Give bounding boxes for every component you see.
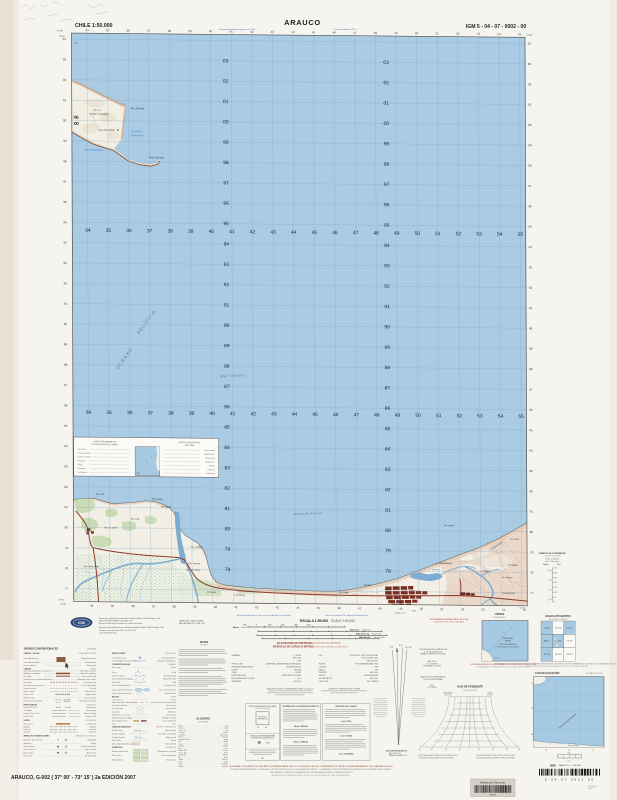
svg-text:El segundo dígito de la cifra: El segundo dígito de la cifra es el que … [237, 614, 292, 617]
svg-text:Pta. Litre: Pta. Litre [96, 493, 105, 496]
svg-text:Tubul: Tubul [85, 531, 91, 533]
svg-text:97: 97 [384, 182, 390, 188]
svg-text:3800-7345: 3800-7345 [544, 654, 550, 656]
svg-text:84: 84 [64, 444, 68, 448]
svg-text:Volcan: Volcan [179, 766, 184, 768]
svg-text:Imagen satelital: Imagen satelital [78, 452, 90, 455]
svg-text:Provincial: Provincial [24, 729, 32, 731]
svg-text:38: 38 [168, 29, 172, 33]
svg-text:N.G.: N.G. [399, 645, 403, 647]
svg-text:82: 82 [385, 487, 391, 493]
svg-text:94: 94 [384, 243, 390, 249]
svg-text:RELIEVE: RELIEVE [112, 696, 119, 698]
svg-text:91: 91 [64, 302, 68, 306]
svg-text:98: 98 [223, 160, 229, 166]
svg-text:79: 79 [225, 547, 231, 553]
svg-text:PARA EL CENTRO DE LA HOJA: PARA EL CENTRO DE LA HOJA [421, 653, 447, 656]
svg-text:87: 87 [385, 385, 391, 391]
svg-text:Clasificacion: Clasificacion [205, 461, 215, 463]
svg-text:ARAUCO: ARAUCO [284, 18, 321, 27]
svg-text:43: 43 [271, 30, 275, 34]
svg-text:0 5 10: 0 5 10 [567, 760, 571, 762]
svg-text:48: 48 [378, 607, 382, 611]
svg-text:84: 84 [529, 449, 533, 453]
svg-text:55: 55 [518, 414, 524, 420]
svg-text:CARTA COMPILADA EL: CARTA COMPILADA EL [179, 441, 202, 444]
svg-text:IGM: IGM [550, 763, 556, 767]
svg-text:1:50.000 REG. PROP. INTELECTUA: 1:50.000 REG. PROP. INTELECTUAL [349, 654, 378, 657]
svg-text:92: 92 [64, 281, 68, 285]
svg-text:N° 38' (1.03 MILÉSIMAS): N° 38' (1.03 MILÉSIMAS) [423, 678, 443, 681]
svg-text:N.M.: N.M. [390, 647, 394, 649]
svg-text:88: 88 [529, 367, 533, 371]
svg-text:18 SUR: 18 SUR [295, 672, 302, 674]
svg-text:81: 81 [65, 505, 69, 509]
svg-text:Pta. Coronel: Pta. Coronel [131, 107, 145, 110]
svg-text:86: 86 [224, 404, 230, 410]
svg-text:39: 39 [188, 229, 194, 235]
svg-text:Bridge, Tunnel: Bridge, Tunnel [86, 694, 97, 696]
svg-text:ATENDERÁ DE MUY BUENA VOLUNTAD: ATENDERÁ DE MUY BUENA VOLUNTAD SU PETICI… [272, 774, 351, 777]
svg-text:Cña. Raqui: Cña. Raqui [338, 591, 349, 594]
svg-text:Breaking, Rapids: Breaking, Rapids [164, 675, 176, 677]
svg-text:1 pie = 0.30 metros: 1 pie = 0.30 metros [545, 560, 560, 563]
svg-text:34: 34 [86, 410, 92, 416]
svg-text:49: 49 [394, 31, 398, 35]
svg-text:NOTES: NOTES [200, 645, 208, 647]
svg-text:35: 35 [106, 28, 110, 32]
svg-text:00: 00 [384, 121, 390, 127]
svg-text:IGM: IGM [78, 621, 85, 625]
svg-text:42: 42 [250, 30, 254, 34]
svg-text:37: 37 [147, 29, 151, 33]
svg-text:85: 85 [529, 428, 533, 432]
svg-text:52: 52 [461, 607, 465, 611]
svg-text:39: 39 [193, 605, 197, 609]
svg-text:76: 76 [531, 683, 533, 685]
svg-text:IGM 2007: IGM 2007 [294, 681, 301, 683]
svg-text:36: 36 [127, 410, 133, 416]
svg-text:45: 45 [312, 412, 318, 418]
svg-text:ESTE MAPA SE IMPRIMIÓ BAJO LAS: ESTE MAPA SE IMPRIMIÓ BAJO LAS ROJA [430, 618, 469, 621]
svg-text:02: 02 [223, 79, 229, 85]
svg-text:40: 40 [209, 229, 215, 235]
svg-text:83: 83 [385, 467, 391, 473]
svg-text:SLOPE GUIDE: SLOPE GUIDE [463, 690, 478, 692]
svg-text:M. Paraíso: M. Paraíso [502, 576, 513, 579]
svg-text:93: 93 [384, 263, 390, 269]
svg-text:Loose surface road: Loose surface road [82, 676, 96, 678]
svg-text:Carampangue: Carampangue [460, 594, 475, 596]
svg-text:Metros: Metros [233, 626, 239, 629]
svg-text:36: 36 [126, 228, 132, 234]
svg-text:41: 41 [229, 229, 235, 235]
svg-text:AÑO 2006: AÑO 2006 [293, 657, 301, 660]
svg-text:77: 77 [65, 587, 69, 591]
svg-text:83: 83 [530, 469, 534, 473]
svg-text:02: 02 [63, 78, 67, 82]
svg-text:54: 54 [502, 608, 506, 612]
svg-text:77: 77 [530, 591, 534, 595]
svg-text:40: 40 [209, 411, 215, 417]
svg-text:A 7: A 7 [137, 471, 141, 475]
svg-text:Terreno inundable: Terreno inundable [112, 733, 125, 735]
svg-text:38: 38 [168, 411, 174, 417]
svg-text:Duna, Playa de arena: Duna, Playa de arena [112, 721, 128, 723]
svg-text:35: 35 [111, 604, 115, 608]
svg-text:DESCRIPCIÓN DE COORDENADAS UTM: DESCRIPCIÓN DE COORDENADAS UTM(*) en Pro… [267, 687, 313, 690]
svg-text:79: 79 [530, 550, 534, 554]
svg-text:41: 41 [230, 411, 236, 417]
svg-text:95: 95 [63, 220, 67, 224]
svg-text:44: 44 [291, 230, 297, 236]
svg-text:100: 100 [554, 592, 557, 594]
svg-text:PUNTO DE: PUNTO DE [259, 717, 267, 719]
svg-text:Balneario, Faro: Balneario, Faro [24, 746, 35, 748]
svg-text:48: 48 [374, 31, 378, 35]
svg-text:83: 83 [224, 465, 230, 471]
svg-text:Arauco: Arauco [400, 598, 407, 601]
svg-text:R. Carampangue: R. Carampangue [436, 562, 453, 565]
svg-text:49: 49 [399, 607, 403, 611]
svg-text:42: 42 [255, 605, 259, 609]
svg-text:45: 45 [312, 30, 316, 34]
svg-text:34: 34 [85, 28, 89, 32]
svg-text:THIS MAP IS RED LIGHT READABLE: THIS MAP IS RED LIGHT READABLE [434, 620, 466, 623]
svg-text:50: 50 [415, 413, 421, 419]
svg-text:4567: 4567 [266, 743, 270, 745]
svg-text:90: 90 [64, 322, 68, 326]
svg-text:GLOSARIO: GLOSARIO [196, 718, 209, 721]
svg-text:46: 46 [332, 230, 338, 236]
svg-text:Fotos aereas: Fotos aereas [205, 457, 215, 460]
svg-text:Las Lomas: Las Lomas [444, 525, 454, 527]
svg-text:79: 79 [385, 548, 391, 554]
svg-text:54: 54 [497, 232, 503, 238]
svg-text:2000: 2000 [281, 624, 285, 626]
svg-text:Hard surface highway: Hard surface highway [81, 673, 97, 675]
svg-text:Zona edificada densa: Zona edificada densa [24, 658, 39, 660]
svg-text:92: 92 [224, 282, 230, 288]
svg-text:42: 42 [250, 229, 256, 235]
svg-text:86: 86 [64, 403, 68, 407]
svg-text:01: 01 [384, 101, 390, 107]
svg-text:54: 54 [497, 32, 501, 36]
svg-text:82: 82 [530, 489, 534, 493]
svg-text:81: 81 [530, 510, 534, 514]
svg-text:80: 80 [531, 734, 533, 736]
svg-text:52: 52 [456, 32, 460, 36]
svg-text:INSTITUTO GEOGRÁFICO MILITAR,: INSTITUTO GEOGRÁFICO MILITAR, 2007 [99, 619, 133, 622]
svg-text:LEGEND: LEGEND [87, 649, 96, 651]
svg-text:50: 50 [420, 607, 424, 611]
svg-text:Control terrestre: Control terrestre [78, 455, 90, 458]
svg-text:82: 82 [225, 486, 231, 492]
svg-text:Chacayapañe: Chacayapañe [502, 592, 516, 595]
svg-text:☎: ☎ [257, 741, 261, 745]
svg-text:98: 98 [384, 162, 390, 168]
svg-text:LIMITES: LIMITES [24, 720, 30, 722]
svg-text:Dátum: PSAD-56: Dátum: PSAD-56 [294, 741, 308, 744]
svg-text:53: 53 [481, 608, 485, 612]
svg-text:25: 25 [548, 599, 550, 601]
svg-text:Impresion: Impresion [207, 468, 214, 471]
svg-text:CONVERSION GRAPH: CONVERSION GRAPH [543, 555, 562, 558]
svg-text:El Saltado: El Saltado [508, 564, 518, 567]
svg-text:46: 46 [337, 606, 341, 610]
svg-text:45: 45 [317, 606, 321, 610]
svg-text:97: 97 [63, 180, 67, 184]
svg-text:55: 55 [592, 750, 594, 752]
svg-text:ISLA: ISLA [93, 109, 101, 112]
svg-text:El Peral: El Peral [432, 569, 440, 571]
svg-text:Boggy ground: Boggy ground [166, 737, 176, 739]
svg-text:DIBUJO: DIBUJO [319, 669, 326, 671]
svg-text:36: 36 [126, 29, 130, 33]
svg-text:ELEVACIÓN EN METROS: ELEVACIÓN EN METROS [277, 640, 312, 645]
svg-text:Gravel causeway: Gravel causeway [84, 697, 96, 699]
svg-text:87: 87 [64, 383, 68, 387]
svg-text:00: 00 [223, 119, 229, 125]
svg-text:Edicion: Edicion [209, 465, 215, 467]
svg-text:PENDIENTE: PENDIENTE [443, 693, 452, 695]
svg-text:90: 90 [529, 326, 533, 330]
svg-text:37: 37 [147, 228, 153, 234]
svg-text:37°00': 37°00' [57, 30, 64, 32]
svg-text:Curso: Curso [112, 672, 116, 674]
svg-text:Lake or Pond, Perennial: Lake or Pond, Perennial [159, 689, 177, 691]
svg-text:3745-7330: 3745-7330 [555, 641, 561, 643]
svg-text:86: 86 [385, 406, 391, 412]
svg-text:96: 96 [63, 200, 67, 204]
svg-text:78: 78 [65, 566, 69, 570]
svg-text:02: 02 [383, 80, 389, 86]
svg-text:89: 89 [224, 343, 230, 349]
svg-text:Preparado y publicado por el I: Preparado y publicado por el Instituto G… [99, 617, 160, 620]
svg-text:Pozo o Tranque, Embalse: Pozo o Tranque, Embalse [112, 685, 130, 687]
svg-text:A Dirección Nacional de Fronte: A Dirección Nacional de Fronteras y Lími… [99, 622, 142, 625]
svg-text:36: 36 [131, 604, 135, 608]
svg-text:34: 34 [90, 604, 94, 608]
svg-text:93: 93 [224, 262, 230, 268]
svg-text:FUENTE: FUENTE [319, 664, 327, 666]
svg-text:87: 87 [224, 384, 230, 390]
svg-text:Pies: Pies [557, 564, 561, 566]
svg-text:45: 45 [257, 727, 259, 729]
svg-text:Pozo, Noria: Pozo, Noria [112, 682, 120, 684]
svg-text:NOTAS: NOTAS [200, 641, 209, 644]
svg-text:Dátum: WGS-84: Dátum: WGS-84 [294, 725, 308, 728]
svg-text:Sandy area: Sandy area [168, 712, 176, 714]
svg-text:36: 36 [545, 750, 547, 752]
svg-text:82: 82 [64, 485, 68, 489]
svg-text:01: 01 [223, 99, 229, 105]
svg-text:51: 51 [440, 607, 444, 611]
svg-text:48: 48 [374, 412, 380, 418]
svg-text:00: 00 [528, 123, 532, 127]
svg-text:86: 86 [529, 408, 533, 412]
svg-text:85: 85 [64, 424, 68, 428]
svg-text:Cña. la Boca: Cña. la Boca [188, 562, 201, 565]
svg-text:LÍMITES: LÍMITES [495, 613, 505, 616]
svg-text:Zona de cuadrícula 18 • Elípso: Zona de cuadrícula 18 • Elípsoide Sudame… [325, 615, 369, 617]
svg-text:49: 49 [394, 231, 400, 237]
svg-text:Carta: 70134: Carta: 70134 [341, 720, 351, 723]
svg-text:73°45': 73°45' [59, 36, 66, 38]
svg-text:250: 250 [554, 577, 557, 579]
svg-text:Imagen SPOT: Imagen SPOT [204, 454, 215, 456]
svg-text:49: 49 [395, 413, 401, 419]
svg-text:90: 90 [384, 324, 390, 330]
svg-text:91: 91 [529, 306, 533, 310]
svg-text:Metros: Metros [543, 563, 549, 566]
svg-text:02: 02 [528, 82, 532, 86]
svg-text:52: 52 [457, 413, 463, 419]
svg-text:Océano: Océano [494, 658, 500, 660]
svg-text:01: 01 [528, 103, 532, 107]
svg-text:CARTA PRELIMINAR SIN: CARTA PRELIMINAR SIN [93, 440, 117, 443]
svg-text:51: 51 [435, 231, 441, 237]
svg-text:44: 44 [296, 606, 300, 610]
svg-text:BOUNDARIES: BOUNDARIES [493, 616, 506, 619]
svg-text:37: 37 [152, 604, 156, 608]
svg-text:91: 91 [224, 303, 230, 309]
svg-text:1:50.000: 1:50.000 [294, 655, 301, 657]
svg-text:Huella, Rodado: Huella, Rodado [24, 691, 35, 693]
svg-text:Reservoir, Dam: Reservoir, Dam [165, 685, 177, 687]
svg-text:46: 46 [333, 412, 339, 418]
svg-text:89: 89 [529, 347, 533, 351]
svg-text:Pta. Puntral: Pta. Puntral [152, 498, 163, 501]
svg-text:GUÍA DE ELEVACIÓN: GUÍA DE ELEVACIÓN [535, 672, 560, 675]
svg-text:43: 43 [270, 230, 276, 236]
svg-text:RELIEF: RELIEF [170, 696, 176, 698]
svg-text:42: 42 [251, 411, 257, 417]
svg-text:44: 44 [292, 412, 298, 418]
svg-text:1000: 1000 [268, 624, 272, 626]
svg-text:INTERVALO DE CURVAS 50 METROS: INTERVALO DE CURVAS 50 METROS [273, 645, 314, 648]
svg-text:0: 0 [256, 624, 257, 626]
svg-text:DÁTUM: DÁTUM [232, 668, 239, 671]
svg-text:XE: XE [73, 115, 79, 120]
svg-text:SIGNOS CONVENCIONALES: SIGNOS CONVENCIONALES [24, 648, 58, 651]
svg-text:Ensenada: Ensenada [130, 130, 142, 133]
svg-text:3730-7345: 3730-7345 [544, 627, 550, 629]
svg-text:Sa. Pta. Delfín: Sa. Pta. Delfín [99, 129, 115, 132]
svg-text:01: 01 [63, 98, 67, 102]
svg-text:Dibujo: Dibujo [78, 464, 83, 466]
svg-text:88: 88 [224, 364, 230, 370]
svg-text:VAR. ANUAL 0.1' ESTE: VAR. ANUAL 0.1' ESTE [423, 665, 442, 668]
svg-text:92: 92 [529, 286, 533, 290]
svg-text:87: 87 [529, 388, 533, 392]
svg-text:Communal: Communal [88, 732, 96, 734]
svg-text:00: 00 [63, 119, 67, 123]
svg-text:XD: XD [73, 121, 79, 126]
svg-text:CONTOUR INTERVAL 50 METERS: CONTOUR INTERVAL 50 METERS [313, 645, 348, 648]
svg-text:INSTRUCTION: INSTRUCTION [165, 653, 177, 655]
svg-text:Canal: Canal [172, 672, 177, 674]
svg-text:03: 03 [63, 58, 67, 62]
svg-text:99: 99 [384, 141, 390, 147]
svg-text:Telephone or Telegraph ln.: Telephone or Telegraph ln. [157, 661, 176, 663]
svg-text:5 04 07 0002 00: 5 04 07 0002 00 [545, 778, 595, 782]
svg-text:GLOSSARY: GLOSSARY [197, 721, 209, 724]
svg-text:PRECISIÓN: PRECISIÓN [319, 680, 329, 683]
svg-text:ARAUCO, G-002 ( 37° 00’ - 73°: ARAUCO, G-002 ( 37° 00’ - 73° 15’ ) 2a E… [11, 773, 136, 781]
svg-text:96: 96 [528, 204, 532, 208]
svg-text:50: 50 [548, 589, 550, 591]
svg-text:04: 04 [528, 42, 532, 46]
svg-text:Caserio, lugarejo: Caserio, lugarejo [24, 665, 36, 667]
svg-text:85: 85 [224, 425, 230, 431]
svg-text:HOJAS ADYACENTES: HOJAS ADYACENTES [545, 615, 570, 618]
svg-text:1080459: 1080459 [489, 795, 496, 797]
svg-text:Via normal 1.676 m: Via normal 1.676 m [24, 707, 38, 709]
svg-text:45: 45 [312, 230, 318, 236]
svg-text:350: 350 [554, 568, 557, 570]
svg-text:47: 47 [358, 606, 362, 610]
svg-text:98: 98 [63, 159, 67, 163]
svg-text:Regional: Regional [24, 726, 31, 728]
svg-text:88: 88 [385, 365, 391, 371]
svg-text:3745-7315: 3745-7315 [566, 641, 572, 643]
svg-text:ESCALA 1:50.000: ESCALA 1:50.000 [300, 619, 328, 623]
svg-text:03: 03 [383, 60, 389, 66]
svg-text:94: 94 [63, 241, 67, 245]
svg-text:3730-7315: 3730-7315 [566, 627, 572, 629]
svg-text:3000: 3000 [294, 624, 298, 626]
svg-text:39: 39 [189, 411, 195, 417]
svg-text:- ARAUCO - • 1:50.000: - ARAUCO - • 1:50.000 [558, 764, 581, 767]
svg-text:98: 98 [528, 164, 532, 168]
svg-text:3800-7315: 3800-7315 [566, 654, 572, 656]
svg-text:AÑO 2006: AÑO 2006 [370, 677, 378, 680]
svg-text:Kilómetros: Kilómetros [350, 629, 360, 632]
svg-text:✈: ✈ [57, 739, 59, 742]
svg-text:El Peral: El Peral [364, 584, 372, 587]
svg-text:47: 47 [354, 412, 360, 418]
svg-text:38: 38 [167, 229, 173, 235]
svg-text:37°00': 37°00' [526, 35, 533, 37]
svg-text:Lava: Lava [173, 724, 177, 726]
svg-text:SCALE 1:50,000: SCALE 1:50,000 [331, 619, 355, 623]
svg-text:Broad gauge: Broad gauge [87, 707, 96, 709]
svg-text:53: 53 [477, 413, 483, 419]
svg-text:Narrow gauge: Narrow gauge [86, 710, 96, 712]
svg-text:Relleno de ripio: Relleno de ripio [24, 697, 35, 699]
svg-text:35: 35 [106, 228, 112, 234]
svg-text:95: 95 [224, 221, 230, 227]
svg-text:50 m: 50 m [297, 678, 301, 680]
svg-text:91: 91 [384, 304, 390, 310]
svg-text:AÑO 2006: AÑO 2006 [370, 671, 378, 674]
svg-text:Marsh, Swamp: Marsh, Swamp [165, 730, 176, 732]
svg-text:NIVEL MEDIO DEL MAR: NIVEL MEDIO DEL MAR [282, 674, 302, 677]
svg-text:37°15': 37°15' [58, 599, 65, 601]
svg-text:47: 47 [353, 230, 359, 236]
svg-text:78: 78 [385, 569, 391, 575]
svg-text:03: 03 [528, 62, 532, 66]
svg-text:CONVERT TO REGION GRID SYSTEM: CONVERT TO REGION GRID SYSTEM [328, 688, 361, 690]
svg-text:PROYECCIÓN: PROYECCIÓN [232, 663, 244, 666]
svg-text:95: 95 [529, 225, 533, 229]
svg-text:89: 89 [384, 345, 390, 351]
svg-text:78: 78 [225, 567, 231, 573]
svg-text:81: 81 [225, 506, 231, 512]
svg-text:SE RUEGA A LOS USUARIOS DE EST: SE RUEGA A LOS USUARIOS DE ESTA CARTA, S… [229, 765, 393, 768]
svg-text:85: 85 [385, 426, 391, 432]
